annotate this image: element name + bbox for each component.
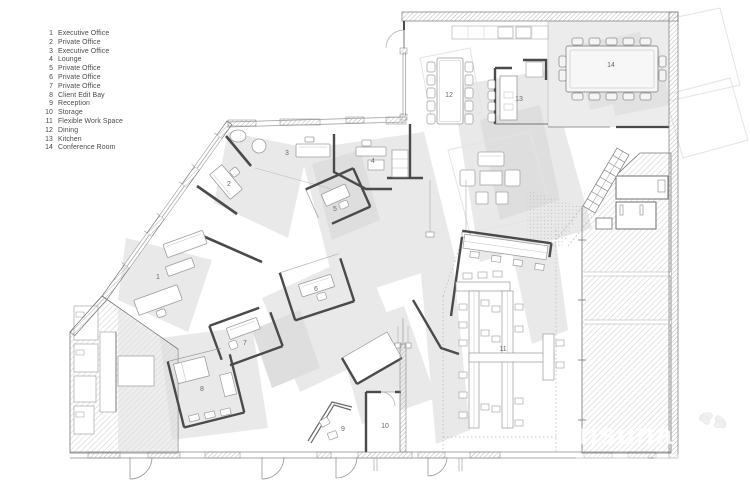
room-label-7: 7	[243, 340, 247, 347]
legend-item: 8Client Edit Bay	[42, 92, 123, 101]
room-label-1: 1	[156, 274, 160, 281]
room-label-14: 14	[607, 62, 615, 69]
legend-item: 1Executive Office	[42, 30, 123, 39]
legend-item: 4Lounge	[42, 56, 123, 65]
room-label-11: 11	[499, 346, 506, 353]
legend-item: 13Kitchen	[42, 136, 123, 145]
floor-plan-page: 1 2 3 4 5 6 7 8 9 10 11 12 13 14 1Execut…	[0, 0, 750, 485]
room-label-13: 13	[515, 96, 523, 103]
room-label-6: 6	[314, 286, 318, 293]
bottom-wall	[70, 452, 671, 479]
room-legend: 1Executive Office 2Private Office 3Execu…	[42, 30, 123, 153]
room-label-5: 5	[333, 206, 337, 213]
legend-item: 12Dining	[42, 127, 123, 136]
legend-item: 5Private Office	[42, 65, 123, 74]
room-label-9: 9	[341, 426, 345, 433]
reception-chairs	[319, 417, 338, 440]
legend-item: 11Flexible Work Space	[42, 118, 123, 127]
dining-table	[427, 58, 473, 124]
legend-item: 14Conference Room	[42, 144, 123, 153]
entrance-door	[386, 21, 404, 48]
room-label-2: 2	[227, 181, 231, 188]
bottom-doors	[130, 457, 447, 479]
legend-item: 2Private Office	[42, 39, 123, 48]
conference-table	[559, 38, 666, 100]
room-label-4: 4	[371, 158, 375, 165]
room-label-12: 12	[445, 92, 453, 99]
legend-item: 6Private Office	[42, 74, 123, 83]
legend-item: 10Storage	[42, 109, 123, 118]
room-label-3: 3	[285, 150, 289, 157]
room-label-8: 8	[200, 386, 204, 393]
legend-item: 9Reception	[42, 100, 123, 109]
entry-glazing	[400, 48, 407, 120]
room-label-10: 10	[381, 423, 389, 430]
legend-item: 7Private Office	[42, 83, 123, 92]
kitchen-counter	[452, 26, 548, 39]
legend-item: 3Executive Office	[42, 48, 123, 57]
butterfly-icon	[696, 408, 731, 433]
